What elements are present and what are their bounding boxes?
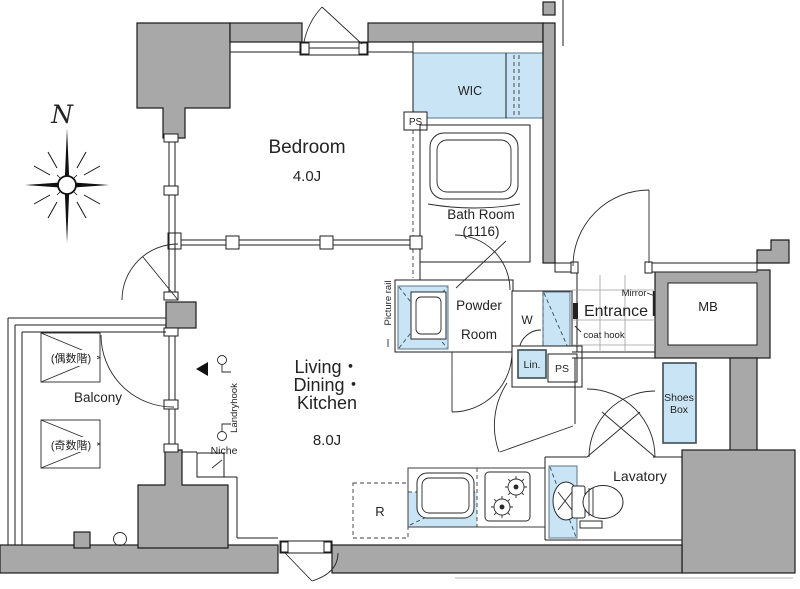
balcony-odd-floor-label: (奇数階) bbox=[51, 438, 91, 452]
ldk-label-2: Dining・ bbox=[293, 375, 362, 395]
ldk-label-1: Living・ bbox=[294, 357, 359, 377]
laundry-hook-line bbox=[222, 365, 231, 372]
casement-swing-bottom bbox=[285, 553, 338, 581]
wall-right-stub bbox=[543, 2, 555, 15]
wall-step-right bbox=[757, 240, 789, 263]
window-jamb bbox=[164, 292, 178, 300]
powder-room-door-swing bbox=[452, 352, 512, 412]
wall-bottom-band-left bbox=[0, 545, 278, 573]
niche-label: Niche bbox=[211, 445, 238, 457]
lavatory-door-swing bbox=[587, 389, 655, 457]
powder-room-label-2: Room bbox=[461, 327, 497, 342]
entrance-label: Entrance bbox=[584, 303, 648, 320]
wall-balcony-cap bbox=[74, 532, 90, 548]
laundry-hook-icon bbox=[218, 432, 227, 441]
balcony-even-floor-label: (偶数階) bbox=[51, 351, 91, 365]
wic-label: WIC bbox=[458, 84, 482, 98]
balcony-drain bbox=[114, 533, 127, 546]
partition-jamb-4 bbox=[410, 236, 422, 249]
wall-strip-right bbox=[730, 358, 757, 452]
balcony-label: Balcony bbox=[74, 390, 122, 405]
window-jamb bbox=[164, 444, 178, 452]
window-jamb bbox=[164, 328, 178, 336]
coat-hook-symbol bbox=[573, 303, 578, 319]
ldk-door-swing bbox=[494, 383, 573, 452]
window-block bbox=[324, 542, 331, 552]
wall-top-left bbox=[137, 23, 230, 138]
bedroom-size-label: 4.0J bbox=[293, 168, 321, 185]
window-block bbox=[359, 43, 367, 54]
window-mullion bbox=[164, 400, 178, 409]
meter-box-interior bbox=[668, 283, 757, 345]
shoes-box-label-1: Shoes bbox=[664, 392, 694, 404]
partition-jamb-3 bbox=[320, 236, 333, 249]
wall-top-1 bbox=[230, 23, 302, 42]
bathtub-outer bbox=[430, 133, 518, 199]
partition-jamb-2 bbox=[226, 236, 239, 249]
bathroom-label: Bath Room bbox=[447, 207, 515, 222]
pipe-space-upper-label: PS bbox=[409, 117, 423, 128]
window-jamb bbox=[164, 134, 178, 142]
wall-top-2 bbox=[368, 23, 543, 42]
direction-marker-icon bbox=[196, 362, 208, 376]
front-door-swing bbox=[573, 190, 649, 266]
refrigerator-label: R bbox=[375, 504, 384, 519]
floor-plan: N Bedroom 4.0J WIC PS Bath Room (1116) P… bbox=[0, 0, 800, 589]
washer-label: W bbox=[521, 313, 533, 327]
bedroom-label: Bedroom bbox=[268, 137, 345, 158]
casement-swing-top bbox=[304, 7, 362, 44]
picture-rail-label: Picture rail bbox=[383, 281, 394, 326]
meter-box-label: MB bbox=[698, 299, 718, 314]
floor-plan-drawing: N Bedroom 4.0J WIC PS Bath Room (1116) P… bbox=[0, 0, 800, 589]
pipe-space-lower-label: PS bbox=[555, 363, 569, 375]
window-block bbox=[281, 542, 288, 552]
compass-north-label: N bbox=[50, 100, 74, 129]
laundry-hook-icon bbox=[218, 356, 227, 365]
toilet-paper-holder bbox=[580, 521, 602, 528]
lavatory-label: Lavatory bbox=[613, 468, 667, 484]
entrance-step bbox=[572, 352, 655, 358]
coat-hook-leader-line bbox=[575, 326, 581, 332]
powder-room-label-1: Powder bbox=[456, 298, 502, 313]
wall-column bbox=[166, 302, 196, 328]
laundry-hook-label: Landryhook bbox=[229, 383, 240, 433]
partition-rails bbox=[180, 240, 420, 245]
entrance-wall-east bbox=[647, 263, 757, 272]
window-mullion bbox=[164, 186, 178, 195]
ldk-size-label: 8.0J bbox=[313, 432, 341, 449]
window-block bbox=[301, 43, 309, 54]
coat-hook-label: coat hook bbox=[583, 330, 624, 341]
wall-right bbox=[543, 23, 555, 263]
north-compass-icon bbox=[25, 128, 109, 243]
ldk-label-3: Kitchen bbox=[297, 393, 357, 413]
wall-bottom-band-right bbox=[332, 545, 682, 573]
compass-center bbox=[58, 176, 76, 194]
door-jamb bbox=[571, 262, 578, 273]
kitchen-sink-outer bbox=[417, 473, 474, 518]
wall-bottom-right bbox=[682, 450, 795, 573]
labels: N Bedroom 4.0J WIC PS Bath Room (1116) P… bbox=[50, 84, 718, 519]
shoes-box-label-2: Box bbox=[670, 404, 689, 416]
mirror-label: Mirror bbox=[622, 288, 647, 299]
door-jamb bbox=[645, 262, 652, 273]
bathroom-size-label: (1116) bbox=[462, 224, 499, 239]
linen-label: Lin. bbox=[524, 359, 541, 371]
